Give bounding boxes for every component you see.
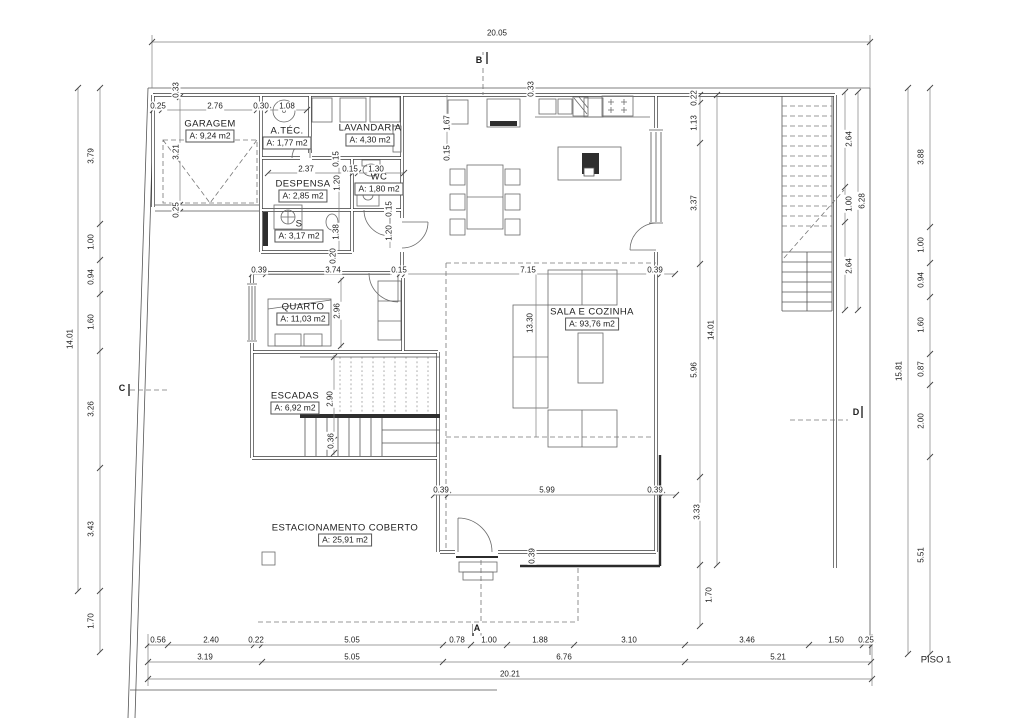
- coffee-table: [578, 333, 603, 383]
- doors: [292, 140, 656, 580]
- sink-basin: [558, 99, 572, 114]
- oven-front: [490, 121, 517, 126]
- washbasin: [363, 190, 373, 200]
- sofa-chaise: [513, 305, 548, 408]
- sink-drainer: [573, 97, 588, 116]
- stove-burners: [608, 99, 627, 113]
- stairs-interior: [300, 357, 440, 456]
- sofa: [548, 270, 617, 305]
- toilet: [326, 214, 338, 230]
- chair: [505, 194, 520, 210]
- floor-plan-sheet: PISO 1 GARAGEMA: 9,24 m2A.TÉC.A: 1,77 m2…: [0, 0, 1010, 720]
- dishwasher: [584, 98, 603, 117]
- entry-step: [459, 562, 497, 572]
- floor-plan-drawing: [0, 0, 1010, 720]
- shower-wall: [263, 212, 268, 246]
- sink-basin: [539, 99, 556, 114]
- water-heater: [273, 100, 295, 122]
- dining-set: [450, 165, 520, 235]
- bedroom-furniture: [268, 281, 401, 346]
- sofa: [548, 410, 617, 447]
- washer: [312, 98, 332, 122]
- cabinet: [393, 126, 401, 152]
- chair: [450, 219, 465, 235]
- chair: [450, 169, 465, 185]
- pillow: [275, 334, 301, 346]
- fridge: [448, 100, 468, 124]
- kitchen-fixtures: [448, 96, 650, 180]
- stair-landing: [300, 414, 440, 418]
- door-entry: [458, 518, 492, 552]
- laundry-fixtures: [312, 97, 401, 152]
- column: [262, 552, 275, 565]
- living-furniture: [513, 270, 617, 447]
- window-living-east: [649, 130, 663, 223]
- dimension-lines: [78, 35, 930, 686]
- entry-step: [463, 572, 493, 580]
- pillow: [304, 334, 322, 346]
- bed: [268, 299, 331, 346]
- dimension-ticks: [75, 39, 933, 682]
- porch-edge: [520, 455, 660, 566]
- chair: [505, 169, 520, 185]
- chair: [505, 219, 520, 235]
- plot-boundary: [128, 88, 870, 718]
- washbasin-counter: [357, 184, 379, 206]
- garage-door: [155, 140, 259, 211]
- wardrobe: [378, 281, 401, 340]
- laundry-sink: [370, 97, 400, 122]
- dryer: [340, 98, 366, 122]
- island-sink: [584, 168, 594, 176]
- toilet-tank: [362, 160, 380, 166]
- stove: [602, 96, 633, 116]
- chair: [450, 194, 465, 210]
